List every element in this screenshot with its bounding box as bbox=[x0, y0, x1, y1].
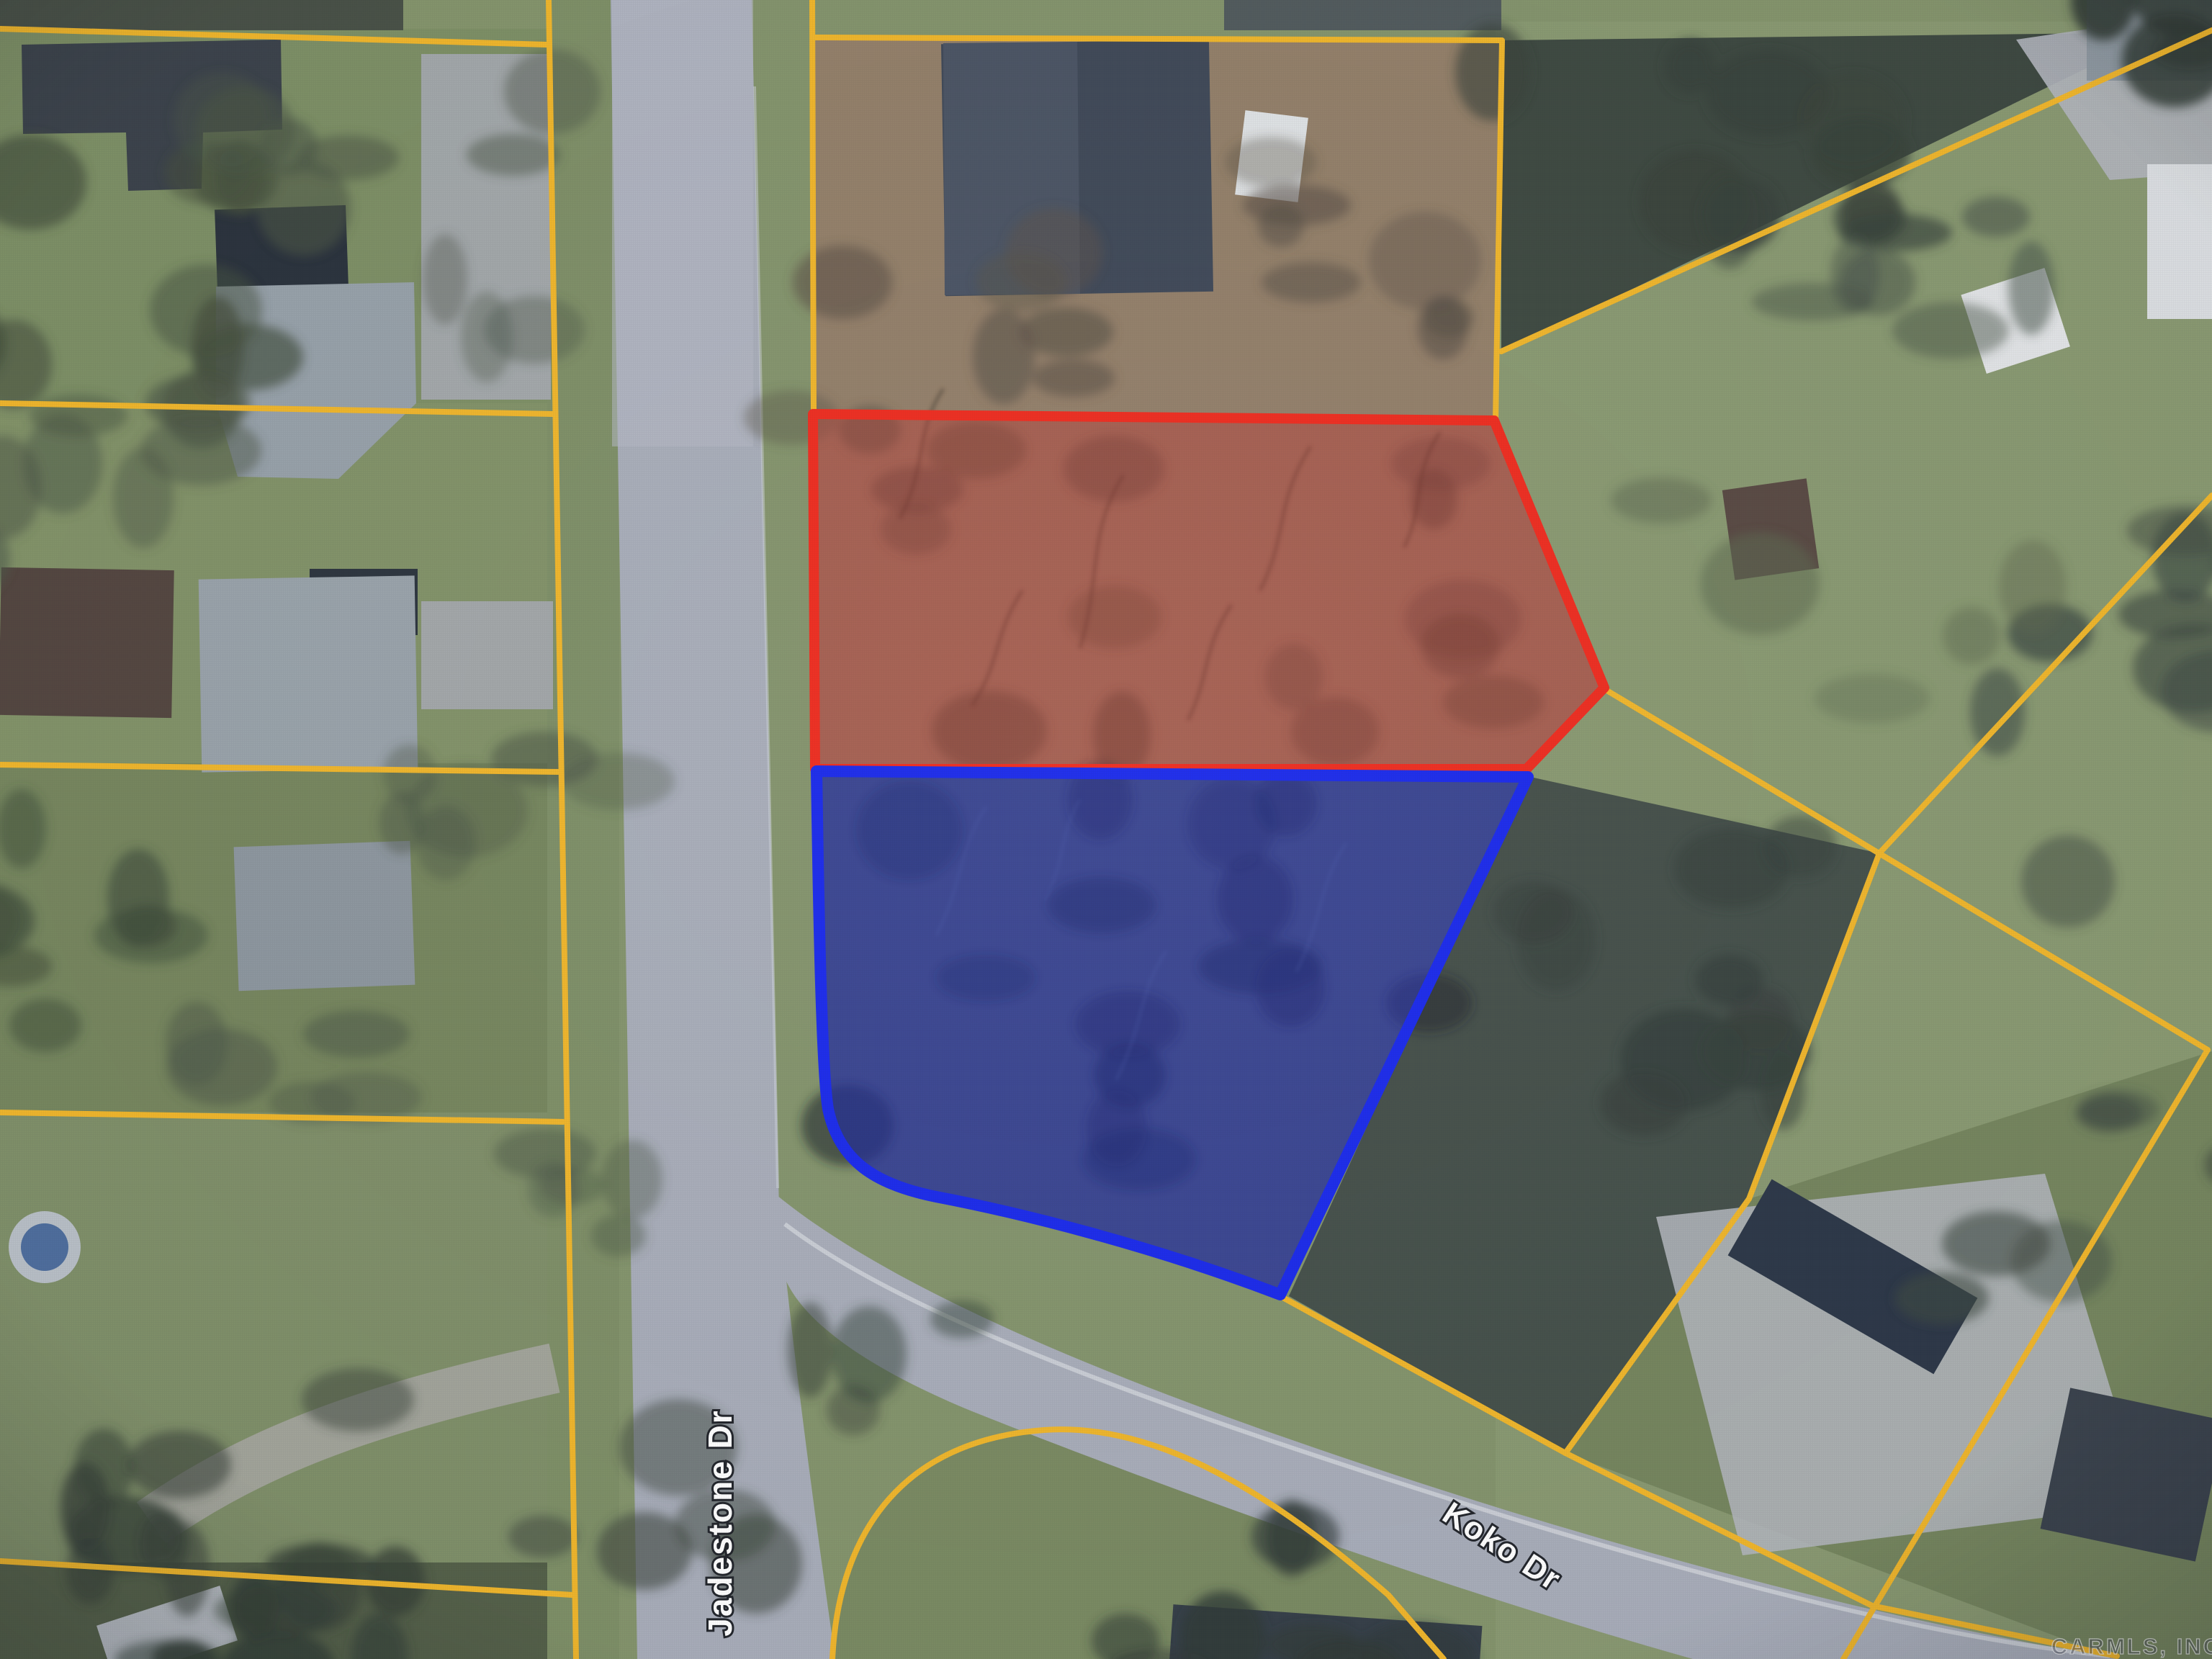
map-viewport[interactable]: Jadestone Dr Koko Dr CARMLS, INC bbox=[0, 0, 2212, 1659]
vignette bbox=[0, 0, 2212, 1659]
aerial-map-canvas[interactable]: Jadestone Dr Koko Dr CARMLS, INC bbox=[0, 0, 2212, 1659]
